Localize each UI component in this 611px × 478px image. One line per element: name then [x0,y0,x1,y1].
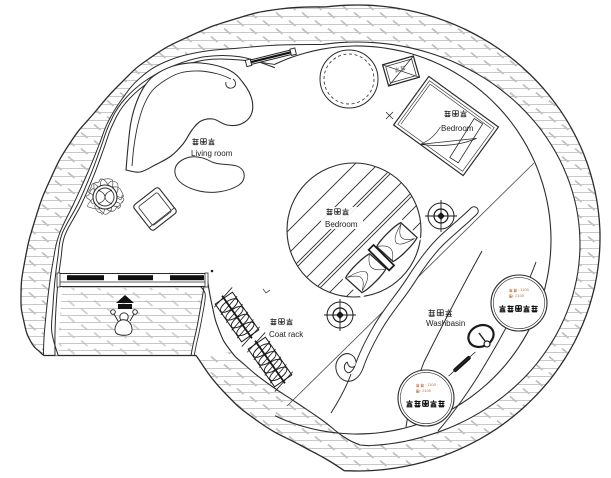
svg-text:Washbasin: Washbasin [426,319,465,328]
svg-text:Bedroom: Bedroom [325,220,358,229]
svg-text:: 1100: : 1100 [518,287,530,292]
svg-text:: 1100: : 1100 [425,382,437,387]
svg-text:Coat rack: Coat rack [269,330,304,339]
svg-text:: 2100: : 2100 [420,388,432,393]
svg-text:: 2100: : 2100 [513,293,525,298]
svg-text:Living room: Living room [191,149,233,158]
svg-text:Bedroom: Bedroom [441,124,474,133]
